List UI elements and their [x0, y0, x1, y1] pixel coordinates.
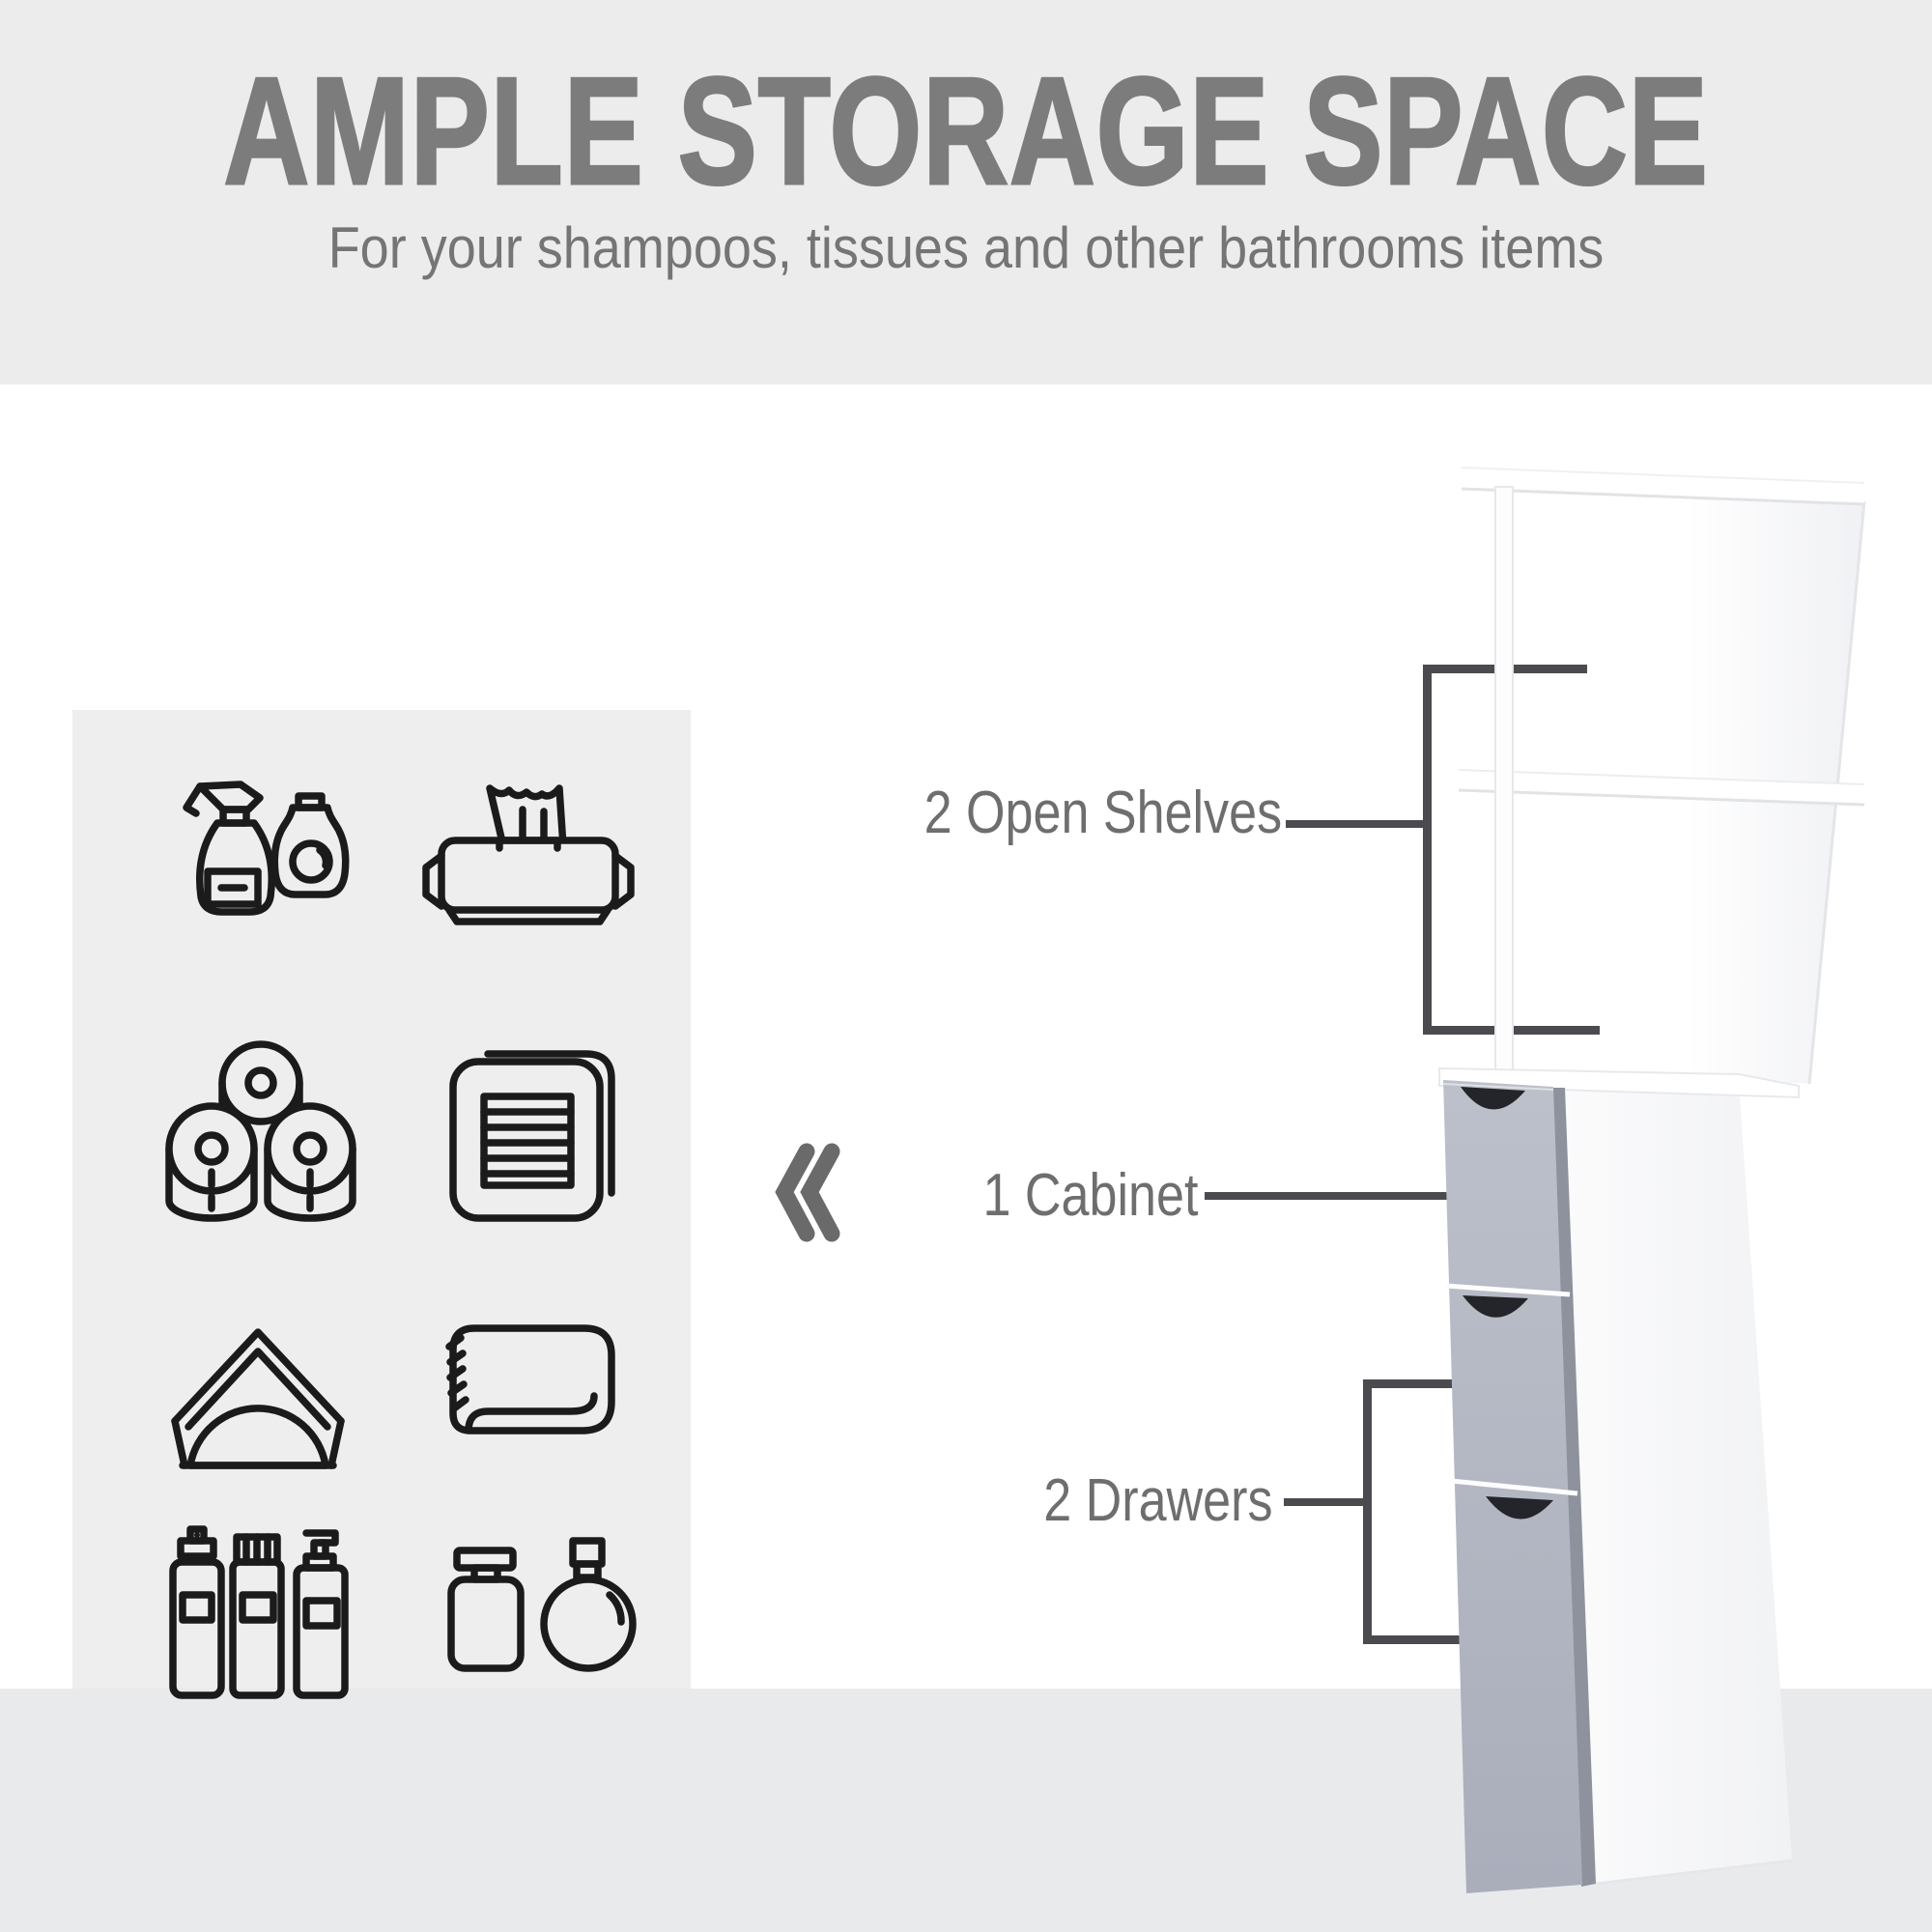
- wet-wipes-pack-icon: [411, 763, 652, 971]
- header-band: AMPLE STORAGE SPACE For your shampoos, t…: [0, 0, 1932, 384]
- label-drawers: 2 Drawers: [1044, 1466, 1273, 1536]
- shelves-leader-line: [1286, 820, 1423, 828]
- drawers-bracket-vertical: [1363, 1379, 1372, 1644]
- page-title: AMPLE STORAGE SPACE: [213, 44, 1719, 219]
- spray-bottle-and-detergent-icon: [140, 763, 382, 971]
- paper-towel-dispenser-icon: [411, 1027, 652, 1235]
- product-infographic: AMPLE STORAGE SPACE For your shampoos, t…: [0, 0, 1932, 1932]
- perfume-bottles-icon: [411, 1512, 652, 1719]
- label-cabinet: 1 Cabinet: [982, 1161, 1198, 1231]
- page-subtitle: For your shampoos, tissues and other bat…: [97, 214, 1835, 281]
- shelf-support-pole: [1495, 487, 1513, 1082]
- open-shelves-section: [1459, 468, 1864, 1084]
- napkin-holder-icon: [140, 1280, 382, 1488]
- double-chevron-left-icon: [773, 1140, 850, 1246]
- toilet-paper-rolls-icon: [140, 1027, 382, 1235]
- drawers-leader-line: [1284, 1498, 1367, 1506]
- cabinet-photo: [1410, 444, 1932, 1913]
- bathroom-items-icon-panel: [72, 710, 691, 1689]
- lower-cabinet-section: [1439, 1068, 1799, 1893]
- toiletry-bottles-icon: [140, 1512, 382, 1719]
- label-open-shelves: 2 Open Shelves: [923, 779, 1282, 848]
- folded-towel-icon: [411, 1280, 652, 1488]
